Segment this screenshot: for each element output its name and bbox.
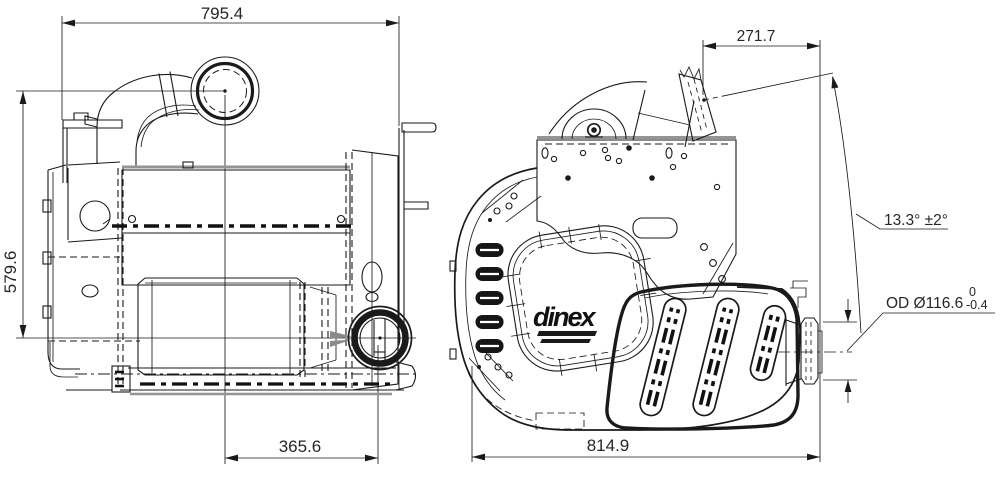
front-outlet-offset-label: 365.6: [279, 437, 322, 456]
side-outlet-od-tol-upper: 0: [969, 285, 976, 299]
side-inlet-pipe: [549, 67, 716, 147]
outlet-flange-ring: [349, 262, 412, 370]
side-outlet-od-label: OD Ø116.6: [886, 295, 963, 312]
front-lower-cylinder: [138, 278, 304, 375]
side-dim-inlet-angle: 13.3° ±2°: [702, 73, 948, 333]
front-upper-cylinder: [112, 152, 353, 388]
front-left-strap: [43, 165, 80, 377]
side-dome: [562, 109, 626, 139]
front-height-label: 579.6: [1, 251, 20, 294]
side-dim-inlet-offset: 271.7: [703, 28, 820, 462]
front-overall-width-label: 795.4: [201, 4, 244, 23]
technical-drawing-canvas: 795.4 579.6 365.6: [0, 0, 1000, 484]
dinex-logo-text: dinex: [533, 302, 597, 332]
side-outlet-flange: [801, 318, 818, 384]
side-overall-length-label: 814.9: [587, 436, 630, 455]
front-left-panel: [48, 162, 140, 388]
heat-shield-louvers: [476, 244, 503, 353]
side-view: 271.7 13.3° ±2° OD Ø116.6 0 -0.4: [450, 28, 995, 462]
insulation-loop: [496, 215, 667, 384]
front-view: 795.4 579.6 365.6: [1, 4, 436, 464]
side-inlet-flange: [679, 74, 716, 141]
side-dim-outlet-od: OD Ø116.6 0 -0.4: [823, 285, 995, 403]
side-top-plate: [537, 138, 736, 300]
drawing-page: 795.4 579.6 365.6: [0, 0, 1000, 484]
inlet-elbow: [85, 72, 199, 167]
front-top-bracket: [63, 113, 122, 183]
side-inlet-offset-label: 271.7: [737, 28, 776, 45]
dinex-logo: dinex: [533, 302, 597, 343]
front-outlet-housing: [300, 282, 352, 377]
side-inlet-angle-label: 13.3° ±2°: [884, 212, 948, 229]
side-outlet-od-tol-lower: -0.4: [966, 298, 988, 312]
